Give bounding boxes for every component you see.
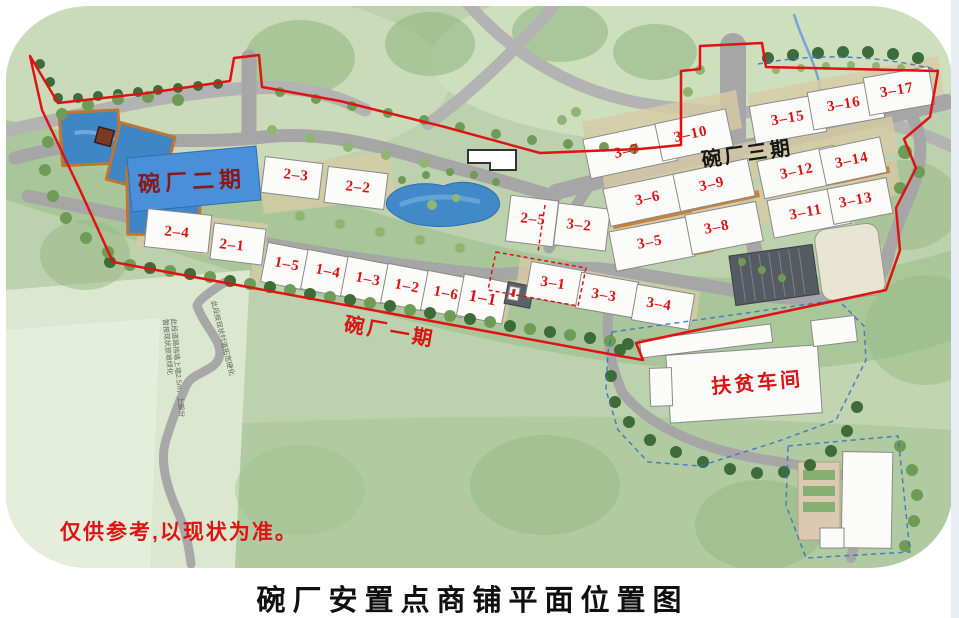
right-edge-strip [951,0,959,618]
footer: 碗厂安置点商铺平面位置图 [0,577,945,618]
service-building [813,222,886,302]
label-2-3: 2–3 [282,166,309,186]
central-pond [386,182,499,226]
label-2-5: 2–5 [519,210,546,230]
label-2-4: 2–4 [164,223,191,242]
map-title: 碗厂安置点商铺平面位置图 [250,577,694,618]
pavilion-icon [95,127,115,147]
workshop-box-n [811,315,858,346]
label-3-2: 3–2 [565,216,592,236]
workshop-box-w [649,368,672,407]
compound-building [841,452,893,549]
label-2-2: 2–2 [344,178,371,198]
disclaimer-text: 仅供参考,以现状为准。 [60,516,298,546]
label-2-1: 2–1 [218,236,245,256]
area-label-phase2: 碗厂二期 [137,161,247,199]
compound-small-building [820,528,844,548]
site-plan-page: 碗厂二期 碗厂三期 碗厂一期 扶贫车间 2–3 2–2 2–4 2–1 2–5 … [0,0,959,618]
